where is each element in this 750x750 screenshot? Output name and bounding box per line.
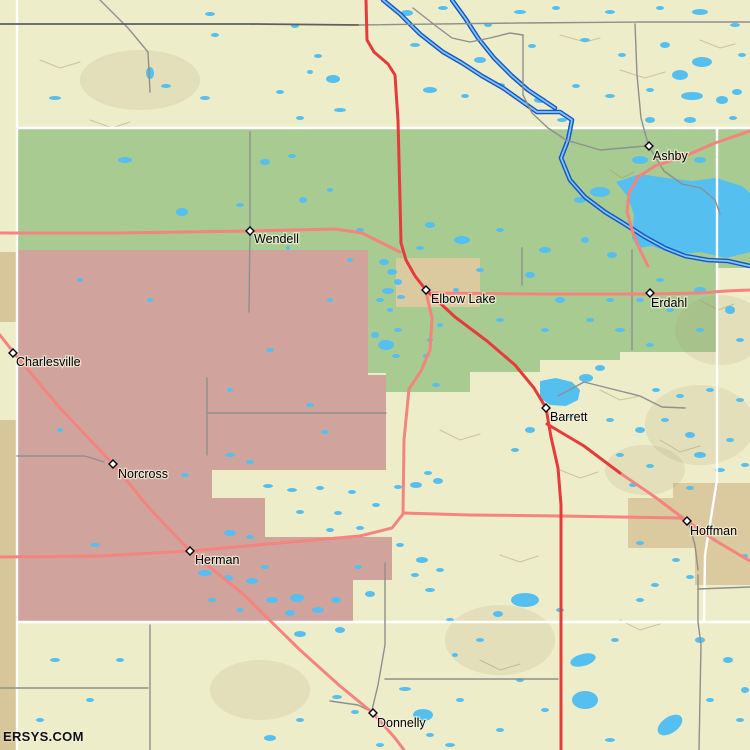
lake	[294, 631, 306, 637]
lake	[557, 118, 567, 122]
lake	[321, 430, 329, 434]
lake	[246, 535, 254, 539]
lake	[236, 203, 244, 207]
road-dark	[0, 24, 358, 25]
lake	[200, 96, 210, 100]
lake	[246, 578, 258, 584]
lake	[461, 94, 469, 98]
lake	[684, 117, 696, 123]
lake	[379, 259, 389, 265]
lake	[676, 394, 684, 398]
lake	[656, 278, 664, 282]
lake	[314, 54, 322, 58]
lake	[347, 258, 353, 262]
lake	[736, 718, 744, 722]
lake	[616, 453, 624, 457]
lake	[296, 718, 304, 722]
lake	[264, 735, 276, 741]
lake	[433, 478, 443, 484]
lake	[694, 452, 706, 458]
town-label-barrett: Barrett	[550, 410, 588, 424]
lake	[334, 511, 342, 515]
lake	[552, 6, 560, 10]
lake	[635, 427, 645, 433]
lake	[605, 10, 615, 14]
lake	[528, 44, 536, 48]
town-label-norcross: Norcross	[118, 467, 168, 481]
lake	[615, 328, 625, 332]
lake	[335, 627, 345, 633]
lake	[90, 543, 100, 547]
lake	[636, 541, 644, 545]
lake	[334, 108, 346, 112]
lake	[432, 383, 440, 387]
lake	[692, 9, 708, 15]
lake	[586, 318, 594, 322]
lake	[236, 608, 244, 612]
lake	[348, 490, 356, 494]
lake	[327, 298, 333, 302]
lake	[736, 398, 744, 402]
lake	[224, 530, 236, 536]
lake	[514, 10, 526, 14]
lake	[652, 388, 660, 392]
lake	[741, 463, 749, 467]
lake	[572, 691, 598, 709]
lake	[511, 593, 539, 607]
lake	[77, 278, 83, 282]
lake	[656, 6, 664, 10]
lake	[225, 453, 235, 457]
lake	[299, 197, 307, 203]
lake	[276, 90, 284, 94]
lake	[288, 154, 296, 158]
lake	[326, 75, 340, 83]
lake	[438, 6, 448, 10]
lake	[411, 573, 419, 577]
lake	[365, 591, 375, 597]
lake	[645, 117, 655, 123]
lake	[50, 658, 60, 662]
lake	[474, 57, 486, 63]
lake	[606, 418, 614, 422]
lake	[36, 718, 44, 722]
lake	[605, 738, 615, 742]
lake	[726, 438, 734, 442]
lake	[730, 23, 740, 27]
town-label-donnelly: Donnelly	[377, 716, 426, 730]
lake	[437, 323, 443, 327]
lake	[410, 43, 420, 47]
region-west-county-tan-south	[0, 420, 16, 750]
lake	[672, 70, 688, 80]
lake	[636, 598, 644, 602]
lake	[425, 222, 435, 228]
lake	[661, 418, 669, 422]
lake	[205, 12, 215, 16]
lake	[541, 708, 549, 712]
lake	[741, 687, 749, 693]
lake	[525, 272, 535, 278]
lake	[456, 698, 464, 702]
terrain-shade	[210, 660, 310, 720]
lake	[580, 38, 590, 42]
lake	[694, 157, 706, 163]
lake	[161, 84, 171, 88]
lake	[263, 484, 273, 488]
lake	[660, 42, 670, 48]
lake	[685, 432, 695, 438]
lake	[396, 543, 404, 547]
lake	[387, 269, 397, 275]
lake	[706, 698, 714, 702]
lake	[452, 653, 458, 657]
lake	[181, 473, 189, 477]
lake	[146, 67, 154, 79]
lake	[425, 588, 435, 592]
lake	[672, 558, 680, 562]
lake	[354, 565, 362, 569]
lake	[496, 228, 504, 232]
lake	[696, 328, 704, 332]
lake	[590, 187, 610, 197]
lake	[312, 607, 324, 613]
lake	[595, 365, 605, 371]
lake	[416, 246, 424, 250]
lake	[692, 57, 712, 67]
lake	[436, 568, 444, 572]
lake	[426, 733, 434, 737]
lake	[646, 464, 654, 468]
lake	[525, 427, 535, 433]
lake	[725, 306, 735, 314]
lake	[296, 510, 304, 514]
lake	[716, 96, 728, 104]
lake	[378, 340, 394, 350]
region-west-county-tan-north	[0, 252, 16, 322]
lake	[738, 53, 746, 57]
lake	[606, 298, 614, 302]
lake	[147, 298, 153, 302]
lake	[376, 298, 384, 302]
lake	[681, 92, 703, 100]
lake	[611, 638, 619, 642]
lake	[476, 268, 484, 272]
lake	[49, 96, 61, 100]
lake	[511, 448, 519, 452]
lake	[572, 84, 580, 88]
lake	[646, 343, 654, 347]
lake	[306, 403, 314, 407]
lake	[266, 348, 274, 352]
lake	[706, 388, 714, 392]
lake	[392, 354, 400, 358]
lake	[632, 156, 648, 164]
lake	[636, 298, 644, 302]
lake	[287, 488, 297, 492]
lake	[493, 611, 503, 617]
lake	[410, 482, 422, 488]
lake	[394, 328, 402, 332]
lake	[290, 594, 304, 602]
lake	[266, 597, 278, 603]
town-label-charlesville: Charlesville	[16, 355, 81, 369]
lake	[651, 583, 659, 587]
lake	[445, 743, 455, 747]
terrain-shade	[80, 50, 200, 110]
lake	[382, 288, 394, 294]
lake	[736, 338, 744, 342]
lake	[394, 485, 402, 489]
lake	[387, 308, 393, 312]
lake	[607, 252, 617, 258]
lake	[261, 565, 269, 569]
town-label-herman: Herman	[195, 553, 240, 567]
lake	[454, 236, 470, 244]
lake	[316, 486, 324, 490]
lake	[351, 710, 359, 714]
lake	[296, 116, 304, 120]
town-label-wendell: Wendell	[254, 232, 299, 246]
lake	[372, 503, 380, 507]
lake	[326, 528, 334, 532]
lake	[581, 237, 589, 243]
lake	[686, 486, 694, 490]
lake	[57, 428, 63, 432]
lake	[496, 728, 504, 732]
lake	[423, 87, 437, 93]
lake	[118, 157, 132, 163]
town-label-ashby: Ashby	[653, 149, 688, 163]
town-label-erdahl: Erdahl	[651, 296, 687, 310]
map-credit: ERSYS.COM	[3, 729, 84, 744]
lake	[176, 208, 188, 216]
lake	[246, 460, 254, 464]
lake	[605, 94, 615, 98]
lake	[331, 597, 341, 603]
lake	[356, 526, 364, 530]
lake	[286, 246, 290, 250]
town-label-hoffman: Hoffman	[690, 524, 737, 538]
lake	[618, 53, 626, 57]
lake	[285, 610, 295, 616]
lake	[646, 88, 654, 92]
lake	[307, 70, 313, 74]
lake	[327, 188, 333, 192]
lake	[397, 295, 405, 299]
lake	[723, 657, 733, 663]
lake	[211, 33, 219, 37]
map-canvas[interactable]: WendellAshbyElbow LakeErdahlCharlesville…	[0, 0, 750, 750]
lake	[539, 247, 551, 253]
lake	[476, 638, 484, 642]
lake	[424, 471, 432, 475]
lake	[227, 388, 233, 392]
town-label-elbow-lake: Elbow Lake	[431, 292, 496, 306]
lake	[729, 116, 737, 120]
lake	[376, 743, 384, 747]
lake	[116, 658, 124, 662]
lake	[399, 687, 411, 691]
lake	[260, 159, 270, 165]
lake	[732, 89, 742, 95]
lake	[394, 279, 402, 285]
lake	[555, 297, 565, 303]
map-svg: WendellAshbyElbow LakeErdahlCharlesville…	[0, 0, 750, 750]
lake	[198, 570, 212, 576]
lake	[541, 328, 549, 332]
lake	[686, 575, 694, 579]
lake	[496, 318, 504, 322]
lake	[208, 598, 216, 602]
lake	[371, 332, 379, 338]
lake	[86, 698, 94, 702]
lake	[416, 557, 428, 563]
lake	[579, 374, 593, 382]
lake	[332, 695, 342, 699]
